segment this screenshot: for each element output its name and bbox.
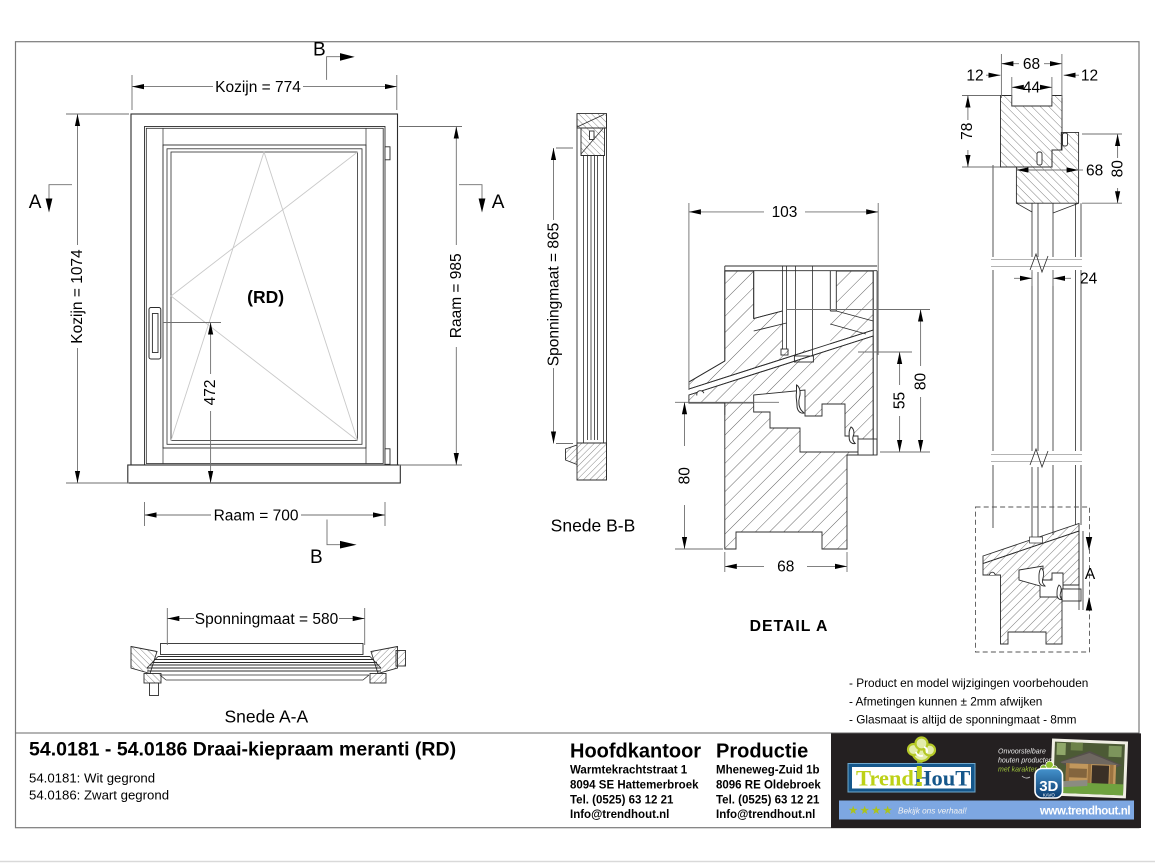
svg-text:Kozijn = 774: Kozijn = 774	[215, 79, 301, 96]
svg-text:68: 68	[1086, 163, 1103, 180]
svg-text:Raam = 700: Raam = 700	[214, 507, 299, 524]
svg-text:A: A	[1085, 566, 1096, 583]
svg-text:12: 12	[966, 67, 983, 84]
svg-text:54.0181: Wit gegrond: 54.0181: Wit gegrond	[29, 771, 155, 786]
svg-text:A: A	[29, 192, 42, 213]
svg-text:★★★★: ★★★★	[848, 805, 894, 817]
svg-text:Tel. (0525) 63 12 21: Tel. (0525) 63 12 21	[570, 795, 674, 807]
svg-text:- Glasmaat is altijd de sponni: - Glasmaat is altijd de sponningmaat - 8…	[849, 713, 1077, 727]
svg-text:Mheneweg-Zuid 1b: Mheneweg-Zuid 1b	[716, 765, 820, 777]
svg-text:55: 55	[891, 392, 908, 409]
svg-text:Productie: Productie	[716, 741, 808, 763]
svg-text:Sponningmaat = 865: Sponningmaat = 865	[545, 223, 562, 367]
svg-text:8094 SE Hattemerbroek: 8094 SE Hattemerbroek	[570, 780, 699, 792]
svg-text:54.0186: Zwart gegrond: 54.0186: Zwart gegrond	[29, 788, 169, 803]
svg-text:B: B	[313, 40, 326, 61]
svg-text:Snede B-B: Snede B-B	[551, 516, 636, 536]
svg-text:Bekijk ons verhaal!: Bekijk ons verhaal!	[898, 807, 967, 816]
svg-text:8096 RE Oldebroek: 8096 RE Oldebroek	[716, 780, 821, 792]
svg-text:80: 80	[676, 467, 693, 485]
svg-text:houten producten: houten producten	[998, 758, 1053, 765]
svg-text:DETAIL A: DETAIL A	[750, 618, 829, 635]
svg-text:80: 80	[1109, 160, 1126, 178]
svg-text:68: 68	[777, 559, 794, 576]
svg-text:103: 103	[772, 204, 798, 221]
svg-text:A: A	[492, 192, 505, 213]
svg-text:met karakter: met karakter	[998, 767, 1038, 774]
svg-text:78: 78	[959, 123, 976, 140]
svg-text:12: 12	[1081, 67, 1098, 84]
svg-text:Raam = 985: Raam = 985	[448, 253, 465, 338]
svg-text:68: 68	[1023, 56, 1040, 73]
svg-text:80: 80	[912, 373, 929, 391]
svg-text:TrendHouT: TrendHouT	[856, 766, 970, 791]
svg-text:24: 24	[1080, 271, 1098, 288]
svg-text:(RD): (RD)	[247, 287, 284, 307]
svg-text:Kozijn = 1074: Kozijn = 1074	[69, 249, 86, 344]
svg-text:Tel. (0525) 63 12 21: Tel. (0525) 63 12 21	[716, 795, 820, 807]
svg-text:Warmtekrachtstraat 1: Warmtekrachtstraat 1	[570, 765, 688, 777]
svg-text:54.0181 - 54.0186 Draai-kiepra: 54.0181 - 54.0186 Draai-kiepraam meranti…	[29, 739, 456, 761]
svg-text:- Afmetingen kunnen ± 2mm afwi: - Afmetingen kunnen ± 2mm afwijken	[849, 695, 1042, 709]
svg-text:Sponningmaat = 580: Sponningmaat = 580	[195, 611, 339, 628]
svg-text:KAVO: KAVO	[1043, 793, 1056, 798]
svg-text:- Product en model wijzigingen: - Product en model wijzigingen voorbehou…	[849, 676, 1088, 690]
svg-text:B: B	[310, 547, 323, 568]
svg-text:www.trendhout.nl: www.trendhout.nl	[1039, 806, 1130, 818]
svg-text:472: 472	[202, 379, 219, 405]
svg-text:Snede A-A: Snede A-A	[224, 707, 308, 727]
svg-text:Info@trendhout.nl: Info@trendhout.nl	[570, 809, 669, 821]
svg-text:Hoofdkantoor: Hoofdkantoor	[570, 741, 701, 763]
svg-text:44: 44	[1023, 80, 1041, 97]
svg-text:Onvoorstelbare: Onvoorstelbare	[998, 749, 1046, 756]
svg-text:Info@trendhout.nl: Info@trendhout.nl	[716, 809, 815, 821]
